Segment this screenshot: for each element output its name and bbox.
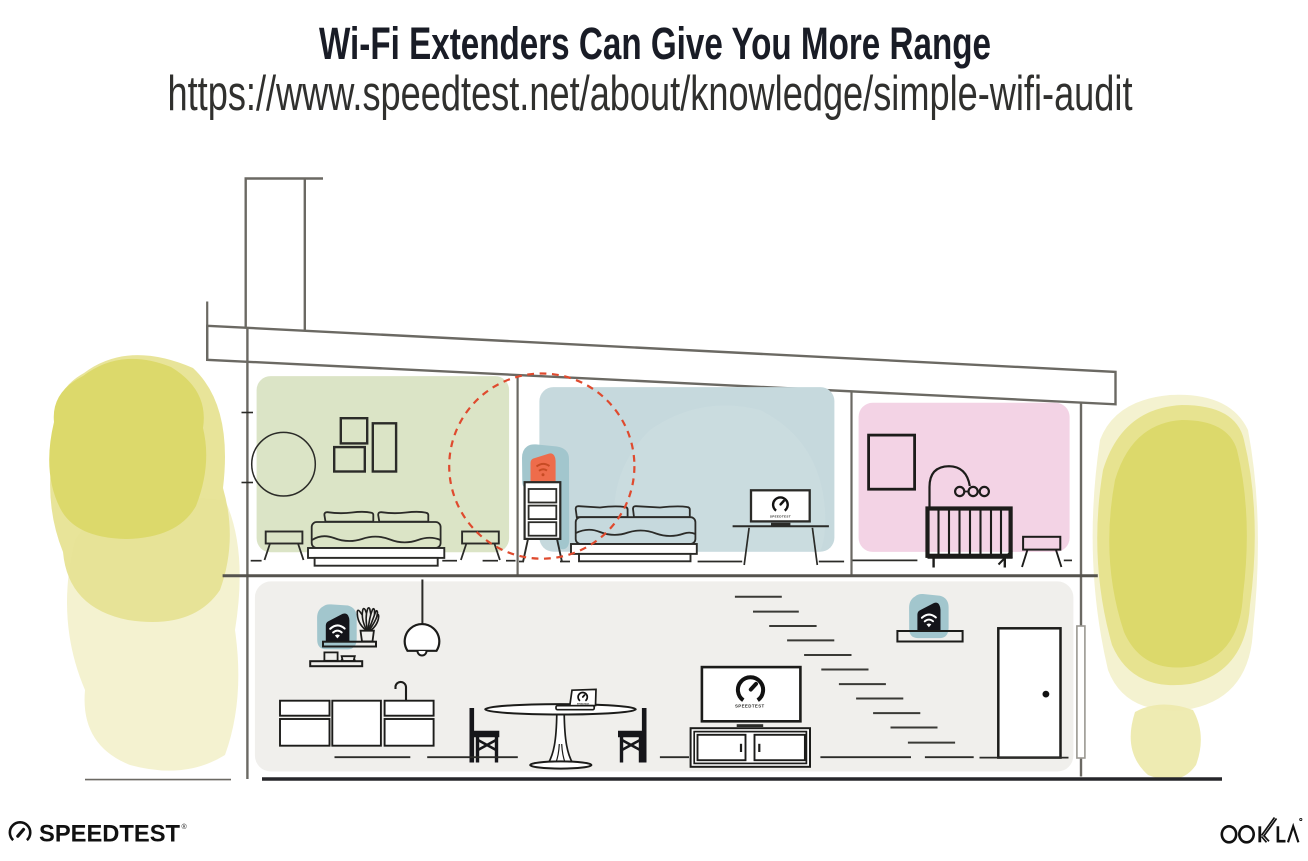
svg-text:https://www.speedtest.net/abou: https://www.speedtest.net/about/knowledg…: [168, 67, 1133, 121]
svg-text:Wi-Fi Extenders Can Give You M: Wi-Fi Extenders Can Give You More Range: [319, 18, 991, 69]
svg-text:SPEEDTEST: SPEEDTEST: [770, 515, 791, 519]
svg-text:SPEEDTEST: SPEEDTEST: [39, 821, 180, 848]
svg-text:®: ®: [182, 823, 188, 831]
svg-text:SPEEDTEST: SPEEDTEST: [735, 704, 765, 709]
